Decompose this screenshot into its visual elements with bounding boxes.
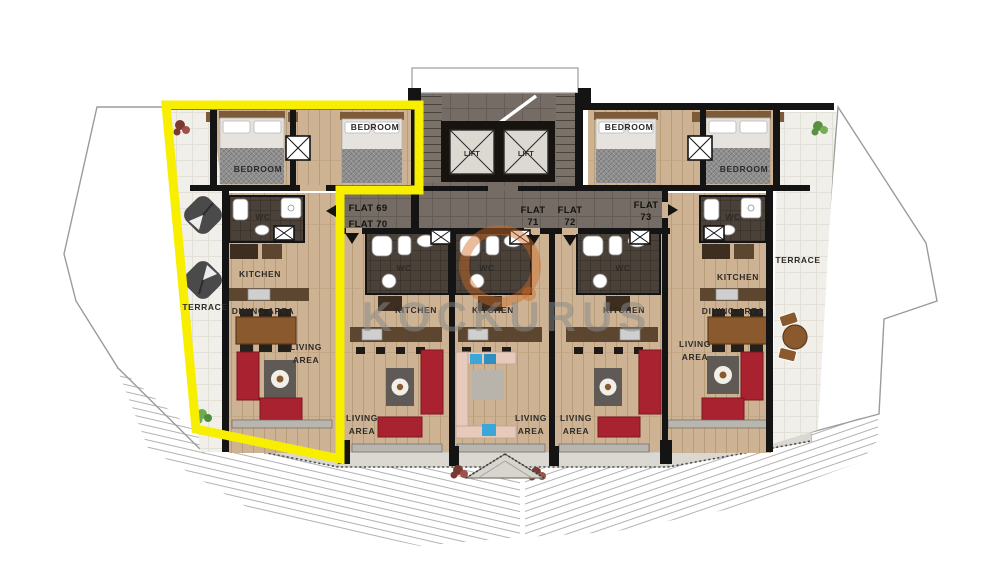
wc-72-label: WC — [615, 263, 630, 273]
living-69-label-line2: AREA — [293, 355, 320, 365]
wc-70-label: WC — [396, 263, 411, 273]
living-71-label: LIVING — [515, 413, 547, 423]
living-69-label: LIVING — [290, 342, 322, 352]
roof-void — [412, 68, 578, 93]
living-71-label-line2: AREA — [518, 426, 545, 436]
flat-69-tag: FLAT 69 — [349, 203, 388, 214]
terrace-right-label: TERRACE — [775, 255, 820, 265]
bedroom-1-label: BEDROOM — [234, 164, 283, 174]
wc-73-label: WC — [725, 212, 740, 222]
lift-1-label: LIFT — [464, 151, 480, 158]
living-73-label: LIVING — [679, 339, 711, 349]
floor-plan-drawing: BEDROOMBEDROOMBEDROOMBEDROOMWCWCWCWCWCKI… — [0, 0, 1000, 563]
bedroom-4-label: BEDROOM — [720, 164, 769, 174]
living-72-label-line2: AREA — [563, 426, 590, 436]
floor-plan-page: BEDROOMBEDROOMBEDROOMBEDROOMWCWCWCWCWCKI… — [0, 0, 1000, 563]
watermark-text: KOCKURUS — [362, 293, 653, 340]
dining-69-label: DINING AREA — [232, 306, 294, 316]
flat-73-tag: FLAT — [634, 200, 659, 211]
lift-shafts — [441, 121, 555, 182]
kitchen-69-label: KITCHEN — [239, 269, 281, 279]
flat-71-tag-line2: 71 — [527, 217, 539, 228]
flat-72-tag: FLAT — [558, 205, 583, 216]
flat-72-tag-line2: 72 — [564, 217, 575, 228]
living-73-label-line2: AREA — [682, 352, 709, 362]
living-70-label-line2: AREA — [349, 426, 376, 436]
terrace-left-label: TERRACE — [182, 302, 227, 312]
living-70-label: LIVING — [346, 413, 378, 423]
lift-2-label: LIFT — [518, 151, 534, 158]
flat-71-tag: FLAT — [521, 205, 546, 216]
bedroom-3-label: BEDROOM — [605, 122, 654, 132]
flat-73-tag-line2: 73 — [640, 212, 651, 223]
kitchen-73-label: KITCHEN — [717, 272, 759, 282]
wc-71-label: WC — [479, 263, 494, 273]
bedroom-2-label: BEDROOM — [351, 122, 400, 132]
wc-69-label: WC — [255, 212, 270, 222]
living-72-label: LIVING — [560, 413, 592, 423]
flat-70-tag: FLAT 70 — [349, 219, 388, 230]
dining-73-label: DINING AREA — [702, 306, 764, 316]
